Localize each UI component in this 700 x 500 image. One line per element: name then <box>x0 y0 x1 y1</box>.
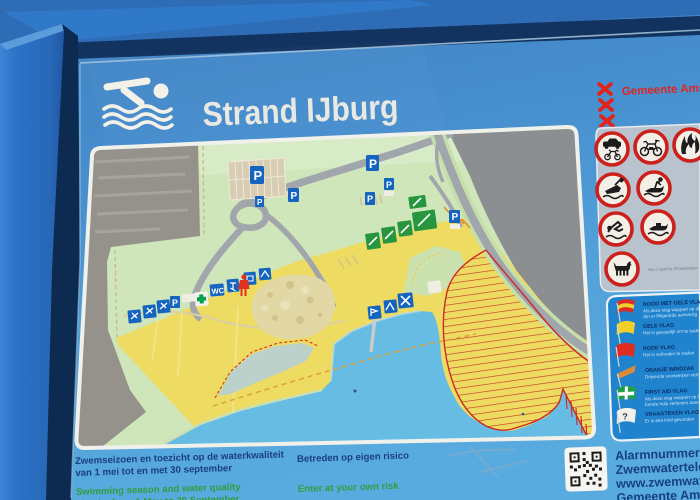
svg-text:P: P <box>452 212 459 223</box>
svg-text:P: P <box>254 168 263 183</box>
svg-text:?: ? <box>622 411 628 421</box>
svg-text:WC: WC <box>211 286 225 296</box>
svg-text:P: P <box>291 191 298 202</box>
svg-text:P: P <box>386 180 392 190</box>
svg-text:P: P <box>369 157 377 171</box>
svg-text:P: P <box>367 194 373 204</box>
svg-text:P: P <box>257 198 263 207</box>
svg-text:P: P <box>172 298 178 308</box>
